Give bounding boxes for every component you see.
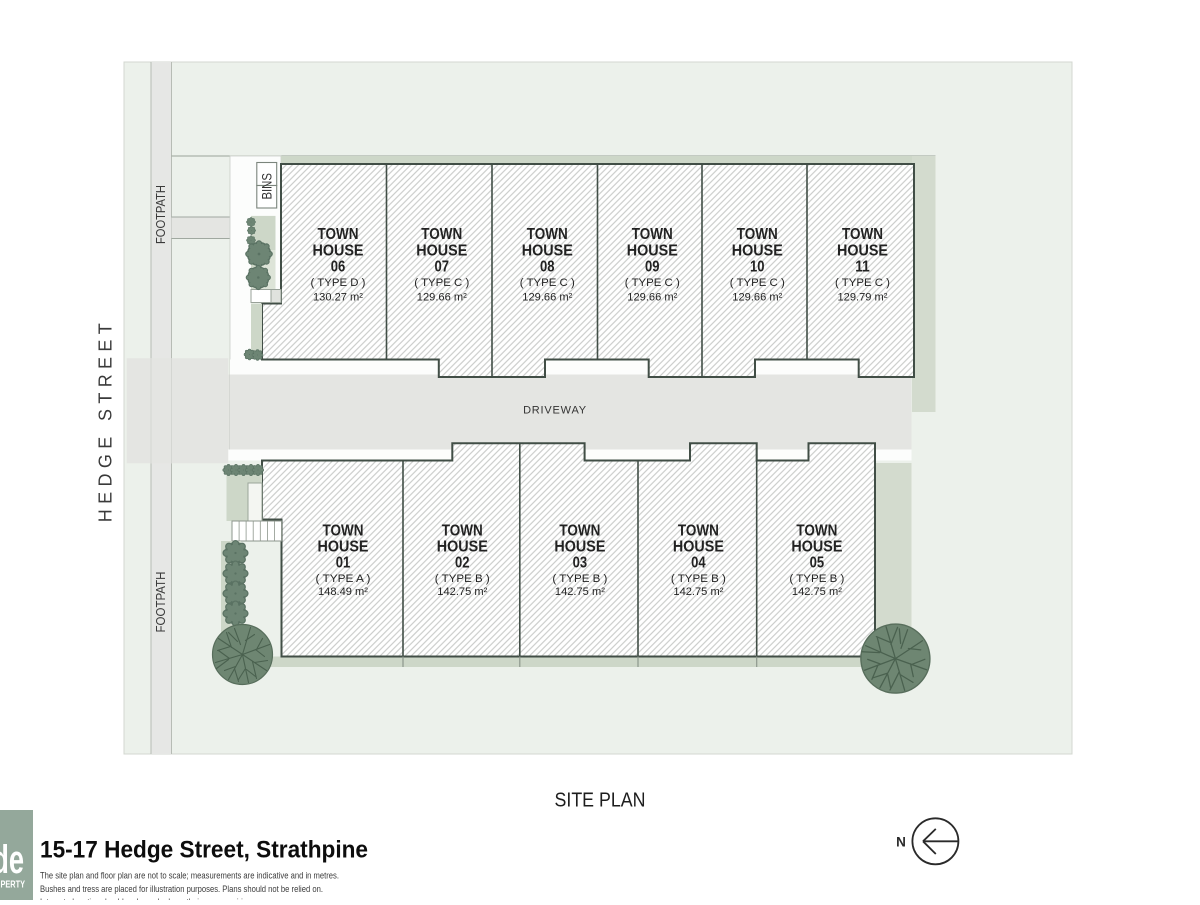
svg-text:( TYPE B ): ( TYPE B ) (435, 573, 490, 585)
svg-text:( TYPE A ): ( TYPE A ) (316, 573, 371, 585)
svg-text:TOWN: TOWN (678, 523, 719, 540)
svg-text:( TYPE C ): ( TYPE C ) (414, 277, 469, 289)
svg-text:The site plan and floor plan a: The site plan and floor plan are not to … (40, 871, 339, 882)
svg-text:FOOTPATH: FOOTPATH (153, 572, 168, 633)
svg-text:TOWN: TOWN (442, 523, 483, 540)
svg-text:129.66 m²: 129.66 m² (732, 292, 782, 304)
svg-text:08: 08 (540, 259, 555, 276)
svg-text:HOUSE: HOUSE (437, 539, 488, 556)
svg-text:TOWN: TOWN (632, 226, 673, 243)
svg-text:de: de (0, 838, 24, 882)
svg-text:HOUSE: HOUSE (313, 243, 364, 260)
svg-text:TOWN: TOWN (421, 226, 462, 243)
svg-text:HOUSE: HOUSE (627, 243, 678, 260)
svg-text:129.66 m²: 129.66 m² (522, 292, 572, 304)
svg-text:( TYPE D ): ( TYPE D ) (311, 277, 366, 289)
svg-text:HOUSE: HOUSE (318, 539, 369, 556)
svg-text:TOWN: TOWN (323, 523, 364, 540)
svg-text:TOWN: TOWN (527, 226, 568, 243)
svg-text:02: 02 (455, 555, 470, 572)
svg-text:TOWN: TOWN (559, 523, 600, 540)
svg-text:148.49 m²: 148.49 m² (318, 586, 368, 598)
svg-text:05: 05 (810, 555, 825, 572)
svg-text:PERTY: PERTY (1, 879, 26, 891)
svg-text:BINS: BINS (259, 173, 275, 200)
svg-text:129.66 m²: 129.66 m² (417, 292, 467, 304)
svg-text:09: 09 (645, 259, 660, 276)
svg-text:( TYPE B ): ( TYPE B ) (671, 573, 726, 585)
svg-text:129.66 m²: 129.66 m² (627, 292, 677, 304)
svg-text:10: 10 (750, 259, 765, 276)
svg-text:DRIVEWAY: DRIVEWAY (523, 405, 587, 417)
svg-text:HOUSE: HOUSE (732, 243, 783, 260)
svg-text:FOOTPATH: FOOTPATH (153, 185, 168, 244)
svg-text:04: 04 (691, 555, 706, 572)
svg-text:11: 11 (855, 259, 870, 276)
svg-text:N: N (896, 835, 906, 850)
svg-text:HOUSE: HOUSE (791, 539, 842, 556)
svg-text:( TYPE B ): ( TYPE B ) (552, 573, 607, 585)
svg-text:TOWN: TOWN (318, 226, 359, 243)
svg-text:( TYPE B ): ( TYPE B ) (789, 573, 844, 585)
svg-text:HOUSE: HOUSE (837, 243, 888, 260)
svg-text:TOWN: TOWN (842, 226, 883, 243)
svg-text:142.75 m²: 142.75 m² (673, 586, 723, 598)
svg-text:HOUSE: HOUSE (554, 539, 605, 556)
svg-text:129.79 m²: 129.79 m² (838, 292, 888, 304)
svg-text:HOUSE: HOUSE (416, 243, 467, 260)
svg-text:06: 06 (331, 259, 346, 276)
svg-text:( TYPE C ): ( TYPE C ) (835, 277, 890, 289)
svg-text:Bushes and tress are placed fo: Bushes and tress are placed for illustra… (40, 884, 323, 895)
svg-text:HOUSE: HOUSE (673, 539, 724, 556)
svg-text:01: 01 (336, 555, 351, 572)
svg-text:TOWN: TOWN (737, 226, 778, 243)
svg-text:SITE PLAN: SITE PLAN (555, 790, 646, 812)
svg-text:03: 03 (573, 555, 588, 572)
svg-text:15-17 Hedge Street, Strathpine: 15-17 Hedge Street, Strathpine (40, 837, 368, 864)
svg-text:( TYPE C ): ( TYPE C ) (730, 277, 785, 289)
svg-text:07: 07 (435, 259, 450, 276)
svg-text:142.75 m²: 142.75 m² (792, 586, 842, 598)
svg-text:HOUSE: HOUSE (522, 243, 573, 260)
svg-text:142.75 m²: 142.75 m² (437, 586, 487, 598)
svg-text:142.75 m²: 142.75 m² (555, 586, 605, 598)
svg-text:TOWN: TOWN (796, 523, 837, 540)
svg-text:( TYPE C ): ( TYPE C ) (625, 277, 680, 289)
svg-text:( TYPE C ): ( TYPE C ) (520, 277, 575, 289)
svg-text:130.27 m²: 130.27 m² (313, 292, 363, 304)
